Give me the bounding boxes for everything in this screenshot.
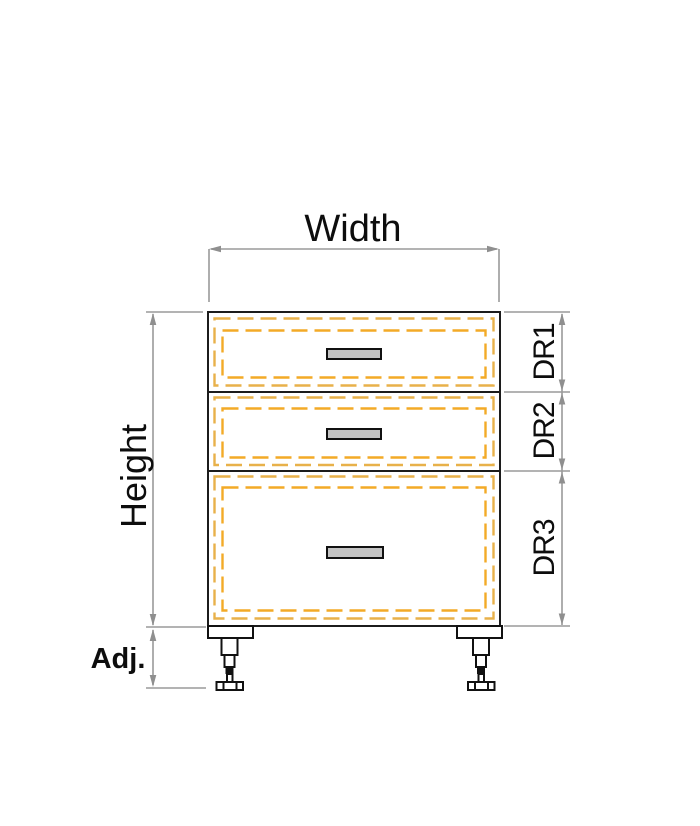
width-label: Width xyxy=(304,208,401,250)
adjustable-foot-right xyxy=(468,638,495,690)
foot-shaft-mid xyxy=(225,655,235,667)
foot-thread xyxy=(226,667,234,674)
adjustable-foot-left xyxy=(217,638,244,690)
drawer-2-handle xyxy=(327,429,381,439)
height-dimension: Height xyxy=(113,312,206,627)
foot-shaft-mid xyxy=(476,655,486,667)
height-arrow-down-icon xyxy=(150,614,157,626)
dr3-arrow-down-icon xyxy=(559,614,566,626)
foot-stem xyxy=(227,674,233,682)
height-label: Height xyxy=(113,424,154,528)
foot-stem xyxy=(479,674,485,682)
dr3-arrow-up-icon xyxy=(559,472,566,484)
adj-arrow-up-icon xyxy=(150,629,157,641)
drawer-1-handle xyxy=(327,349,381,359)
width-arrow-left-icon xyxy=(209,246,221,253)
width-dimension: Width xyxy=(209,208,499,302)
plinth-block-left xyxy=(208,626,253,638)
dr1-arrow-up-icon xyxy=(559,313,566,325)
adjustable-feet-dimension: Adj. xyxy=(91,629,206,688)
height-arrow-up-icon xyxy=(150,313,157,325)
dr2-label: DR2 xyxy=(528,402,561,459)
plinth-block-right xyxy=(457,626,502,638)
dr1-label: DR1 xyxy=(528,323,561,380)
adjustable-feet-label: Adj. xyxy=(91,643,146,675)
foot-shaft-upper xyxy=(222,638,238,655)
drawer-3-handle xyxy=(327,547,383,558)
dr3-label: DR3 xyxy=(528,519,561,576)
cabinet-drawing: Width Height Adj. DR1 DR2 DR3 xyxy=(0,0,700,826)
foot-base xyxy=(468,682,495,690)
foot-base xyxy=(217,682,244,690)
foot-thread xyxy=(477,667,485,674)
drawer-dimensions: DR1 DR2 DR3 xyxy=(504,312,570,626)
cabinet-drawing-svg: Width Height Adj. DR1 DR2 DR3 xyxy=(0,0,700,826)
adj-arrow-down-icon xyxy=(150,675,157,687)
width-arrow-right-icon xyxy=(487,246,499,253)
foot-shaft-upper xyxy=(473,638,489,655)
